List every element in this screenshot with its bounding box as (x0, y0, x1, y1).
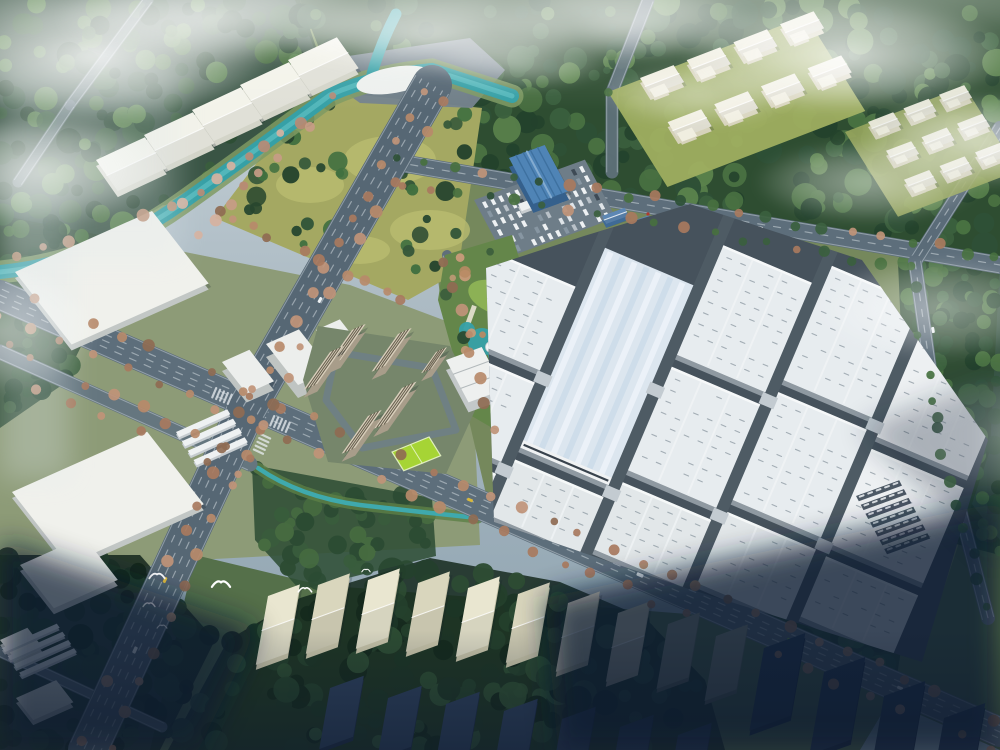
industrial-park-masterplan-rendering (0, 0, 1000, 750)
aerial-rendering-industrial-park (0, 0, 1000, 750)
